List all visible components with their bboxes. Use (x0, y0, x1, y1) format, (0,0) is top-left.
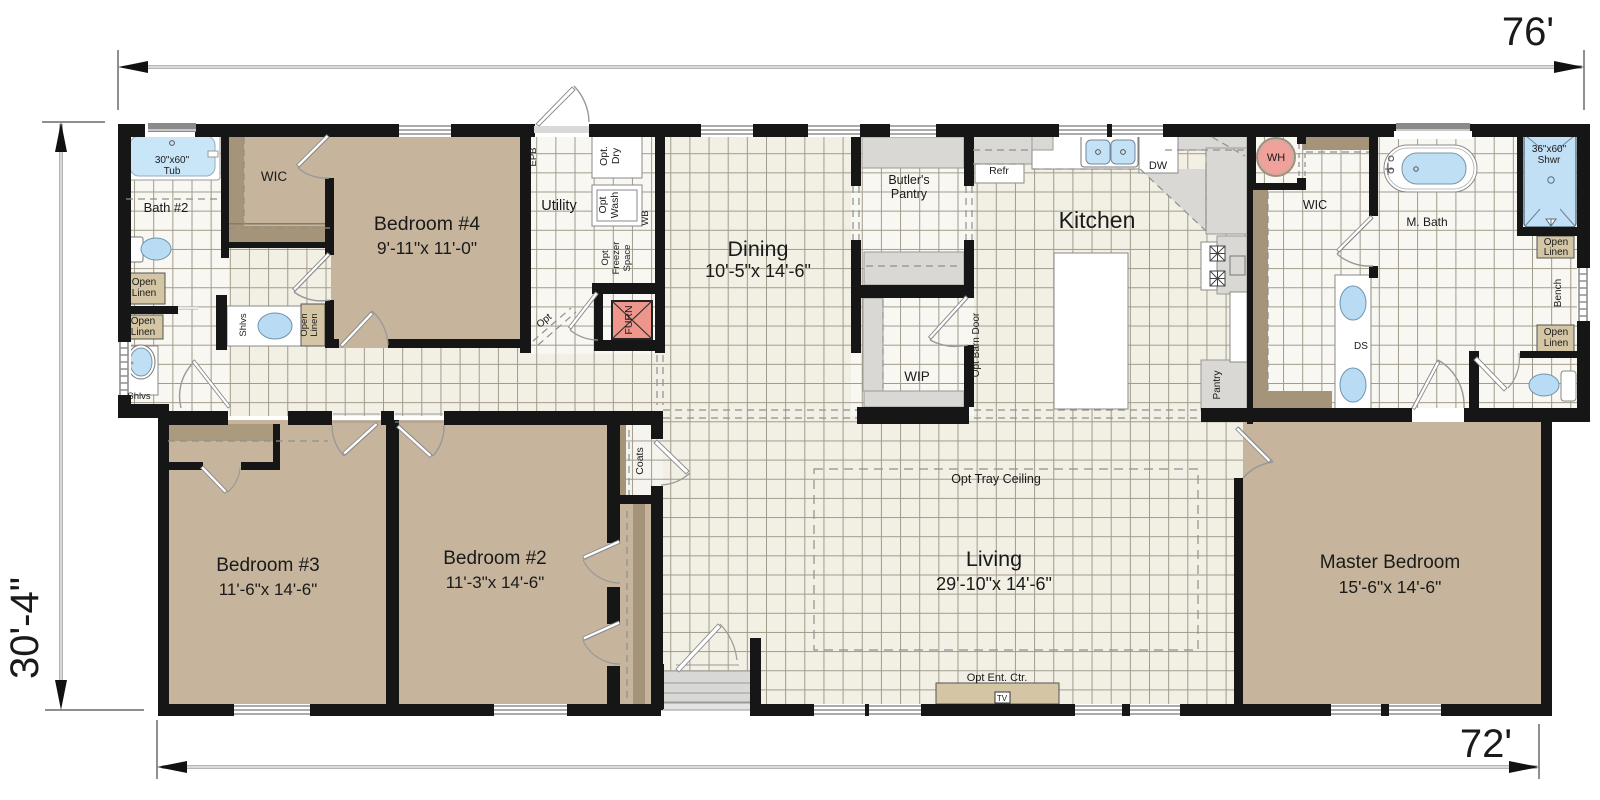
svg-text:Shlvs: Shlvs (127, 391, 150, 402)
svg-text:TV: TV (997, 694, 1008, 703)
svg-text:Bedroom #2: Bedroom #2 (443, 548, 547, 569)
svg-text:Shwr: Shwr (1538, 155, 1561, 166)
svg-text:FURN: FURN (623, 305, 635, 334)
svg-text:11'-6"x 14'-6": 11'-6"x 14'-6" (219, 580, 318, 599)
svg-text:Shlvs: Shlvs (238, 313, 249, 336)
svg-text:Linen: Linen (309, 313, 320, 336)
svg-text:WIC: WIC (261, 169, 287, 184)
svg-text:Opt Tray Ceiling: Opt Tray Ceiling (951, 472, 1041, 486)
svg-text:30'-4": 30'-4" (3, 577, 47, 679)
svg-text:36"x60": 36"x60" (1532, 144, 1567, 155)
svg-text:Dining: Dining (728, 237, 789, 261)
svg-text:Opt: Opt (597, 196, 609, 213)
svg-text:9'-11"x 11'-0": 9'-11"x 11'-0" (377, 238, 477, 258)
svg-text:Bedroom #4: Bedroom #4 (374, 213, 480, 235)
svg-text:M. Bath: M. Bath (1406, 215, 1447, 229)
svg-text:Coats: Coats (634, 447, 646, 474)
svg-text:Dry: Dry (610, 147, 622, 164)
svg-text:Refr: Refr (989, 165, 1009, 177)
svg-text:Linen: Linen (131, 327, 155, 338)
svg-text:Opt: Opt (600, 250, 611, 266)
svg-text:DS: DS (1354, 341, 1368, 352)
svg-text:Pantry: Pantry (1212, 371, 1223, 400)
svg-text:Bench: Bench (1553, 279, 1564, 307)
svg-text:Tub: Tub (164, 166, 181, 177)
svg-text:Open: Open (132, 277, 156, 288)
svg-text:WH: WH (1267, 152, 1285, 164)
svg-text:Opt.: Opt. (598, 146, 610, 166)
svg-text:Opt Barn Door: Opt Barn Door (971, 312, 982, 377)
svg-text:Space: Space (622, 245, 633, 272)
svg-text:Kitchen: Kitchen (1059, 207, 1136, 233)
svg-text:Linen: Linen (1544, 247, 1568, 258)
svg-text:76': 76' (1502, 10, 1554, 54)
svg-text:Linen: Linen (132, 288, 156, 299)
svg-text:WIC: WIC (1303, 198, 1327, 212)
svg-text:Master Bedroom: Master Bedroom (1320, 552, 1460, 573)
svg-text:DW: DW (1149, 160, 1168, 172)
svg-text:Bath #2: Bath #2 (144, 200, 189, 215)
svg-text:WB: WB (640, 210, 651, 225)
svg-text:Linen: Linen (1544, 338, 1568, 349)
svg-text:WIP: WIP (904, 369, 930, 384)
svg-text:Living: Living (966, 547, 1022, 571)
svg-text:30"x60": 30"x60" (155, 155, 190, 166)
svg-text:EPB: EPB (528, 147, 539, 166)
svg-text:Bedroom #3: Bedroom #3 (216, 555, 320, 576)
svg-text:Utility: Utility (541, 198, 577, 214)
svg-text:Open: Open (131, 316, 155, 327)
svg-text:Pantry: Pantry (891, 187, 928, 201)
svg-text:Freezer: Freezer (611, 242, 622, 275)
svg-text:Butler's: Butler's (888, 173, 929, 187)
svg-text:10'-5"x 14'-6": 10'-5"x 14'-6" (705, 261, 811, 281)
svg-text:Wash: Wash (609, 192, 621, 219)
svg-text:Opt Ent. Ctr.: Opt Ent. Ctr. (967, 672, 1028, 684)
svg-text:72': 72' (1460, 722, 1512, 766)
svg-text:11'-3"x 14'-6": 11'-3"x 14'-6" (446, 573, 545, 592)
svg-text:15'-6"x 14'-6": 15'-6"x 14'-6" (1339, 577, 1442, 597)
svg-text:Open: Open (1544, 327, 1568, 338)
svg-text:29'-10"x 14'-6": 29'-10"x 14'-6" (936, 574, 1052, 594)
